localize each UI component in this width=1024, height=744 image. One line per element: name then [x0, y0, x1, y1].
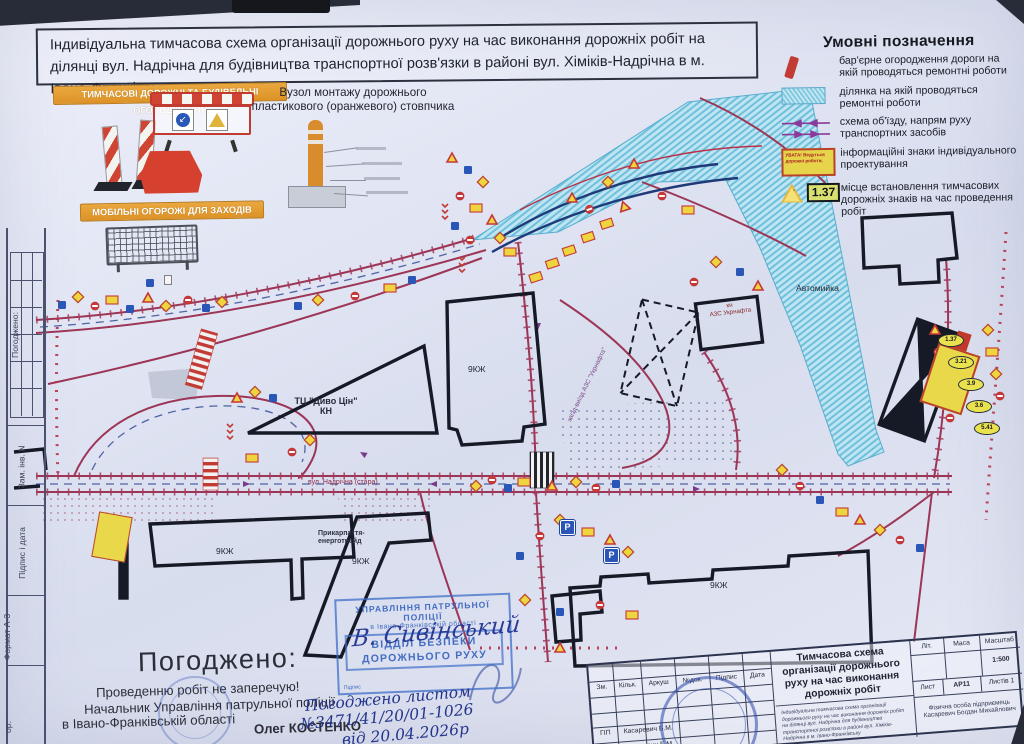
roadworks-mini-sign-icon: [206, 109, 228, 131]
strip-zam-inv-label: Зам. інв. N: [16, 446, 26, 489]
cluster-top-center: [442, 153, 516, 272]
legend-item-text: схема об'їзду, напрям руху транспортних …: [840, 115, 1020, 141]
round-seal-faint: [158, 676, 232, 744]
fencing-banner-bottom-text: МОБІЛЬНІ ОГОРОЖІ ДЛЯ ЗАХОДІВ: [92, 205, 252, 218]
strip-format-label: Формат А-3: [2, 614, 12, 660]
dark-tab: [232, 0, 330, 13]
bld-center-label: 9КЖ: [468, 364, 486, 374]
fencing-banner-bottom: МОБІЛЬНІ ОГОРОЖІ ДЛЯ ЗАХОДІВ: [80, 200, 264, 221]
callout-text-blur: [356, 147, 386, 150]
energo-line2: енерготрейд: [318, 538, 362, 545]
sign-number-oval: 1.37: [938, 334, 964, 347]
frame-line: [6, 665, 45, 666]
legend-item: бар'єрне огородження дороги на якій пров…: [779, 53, 1019, 80]
frame-line: [44, 228, 46, 744]
sheet-title-box: Індивідуальна тимчасова схема організаці…: [36, 22, 759, 86]
roadworks-sign-icon: ⛏: [781, 184, 803, 203]
callout-text-blur: [364, 177, 400, 180]
legend-heading: Умовні позначення: [779, 31, 1019, 52]
road-barrier-icon: [150, 92, 254, 144]
sign-number-oval: 3.21: [948, 356, 974, 369]
callout-text-blur: [362, 162, 402, 165]
tb-header: Дата: [743, 671, 771, 680]
info-sign-icon: УВАГА! Ведуться дорожні роботи.: [781, 148, 835, 177]
sign-1-37: 1.37: [807, 183, 841, 202]
street-main-label: вул. Надрічна (стара): [308, 479, 378, 486]
bld-right-label: 9КЖ: [710, 580, 728, 590]
tb-scale-value: 1:500: [981, 655, 1021, 665]
callout-line: [330, 180, 366, 181]
frame-line: [6, 505, 45, 506]
legend-item: схема об'їзду, напрям руху транспортних …: [780, 115, 1020, 142]
energo-label: Прикарпаття- енерготрейд: [318, 530, 365, 547]
bollard-band: [308, 130, 323, 134]
tb-header: Аркуш: [641, 678, 675, 688]
mall-label: ТЦ "Диво Цін" КН: [268, 396, 384, 416]
bld-mid-label: 9КЖ: [352, 556, 370, 566]
barrier-bar-icon: [784, 56, 799, 80]
strip-sign-date-label: Підпис і дата: [17, 527, 27, 579]
hatched-area-icon: [781, 87, 825, 105]
dashed-structure: [620, 300, 698, 407]
bollard-base: [288, 186, 346, 208]
cluster-right-mid: [776, 464, 924, 552]
bld-small: [552, 591, 602, 642]
tb-scale-label: Масштаб: [979, 636, 1019, 646]
tb-title: Тимчасова схема організації дорожнього р…: [772, 643, 912, 705]
bld-bottomleft: [150, 516, 354, 599]
stamp-line4: ДОРОЖНЬОГО РУХУ: [362, 649, 487, 666]
legend-item-text: інформаційні знаки індивідуального проек…: [840, 146, 1020, 172]
barrier-body: [153, 105, 251, 135]
detour-direction-sign-icon: [172, 109, 194, 131]
mall-sub: КН: [320, 406, 332, 416]
detour-arrows-icon: [780, 117, 832, 142]
bollard-band: [308, 140, 323, 144]
cluster-mall-top: [294, 276, 416, 310]
stamp-sign-label: Підпис: [344, 684, 361, 691]
drawing-sheet: ТЦ "Диво Цін" КН 9КЖ 9КЖ 9КЖ 9КЖ Автомий…: [0, 0, 1024, 744]
frame-line: [6, 425, 45, 426]
strip-inv-label: ор.: [3, 721, 13, 733]
photo-of-drawing: ТЦ "Диво Цін" КН 9КЖ 9КЖ 9КЖ 9КЖ Автомий…: [0, 0, 1024, 744]
legend-item: ⛏ 1.37 місце встановлення тимчасових дор…: [781, 181, 1021, 220]
frame-line: [6, 228, 8, 744]
post-base: [93, 182, 132, 191]
tb-row-label: ГІП: [593, 729, 617, 738]
legend-item-text: місце встановлення тимчасових дорожніх з…: [841, 181, 1021, 219]
cluster-azs: [690, 256, 763, 290]
tb-sheet-value: АР11: [942, 680, 980, 690]
tb-lit-label: Літ.: [909, 642, 943, 652]
mobile-fence-icon: [105, 224, 198, 265]
dotted-areas: [40, 368, 738, 524]
tb-sheet-label: Лист: [913, 683, 943, 692]
strip-approved-label: Погоджено:: [10, 312, 20, 358]
mall-building: [248, 346, 437, 433]
bollard-note-text: Вузол монтажу дорожнього пластикового (о…: [252, 86, 455, 113]
energo-line1: Прикарпаття-: [318, 530, 365, 537]
mall-name: ТЦ "Диво Цін": [295, 396, 358, 406]
legend-item: УВАГА! Ведуться дорожні роботи. інформац…: [780, 146, 1020, 177]
sign-number-oval: 3.6: [966, 400, 992, 413]
tb-mass-label: Маса: [943, 639, 979, 649]
legend-item-text: ділянка на якій проводяться ремонтні роб…: [839, 84, 1019, 110]
barrier-rail: [150, 92, 254, 106]
bld-left-label: 9КЖ: [216, 546, 234, 556]
parking-sign-icon: P: [560, 520, 575, 535]
sign-number-oval: 3.9: [958, 378, 984, 391]
callout-text-blur: [366, 191, 408, 194]
tb-header: Зм.: [590, 683, 614, 692]
parking-sign-icon: P: [604, 548, 619, 563]
carwash-label: Автомийка: [796, 283, 839, 293]
bollard-note-title: Вузол монтажу дорожнього пластикового (о…: [246, 86, 460, 115]
approval-heading: Погоджено:: [138, 643, 298, 678]
legend-item: ділянка на якій проводяться ремонтні роб…: [779, 84, 1019, 111]
legend: Умовні позначення бар'єрне огородження д…: [779, 31, 1022, 226]
sign-number-oval: 5.41: [974, 422, 1000, 435]
frame-line: [6, 595, 45, 596]
info-sign-text: УВАГА! Ведуться дорожні роботи.: [785, 152, 825, 163]
cluster-left-road: [58, 276, 228, 314]
tb-header: Кільк.: [614, 681, 642, 690]
tb-sheets-label: Листів 1: [980, 677, 1022, 687]
legend-item-text: бар'єрне огородження дороги на якій пров…: [839, 53, 1019, 79]
